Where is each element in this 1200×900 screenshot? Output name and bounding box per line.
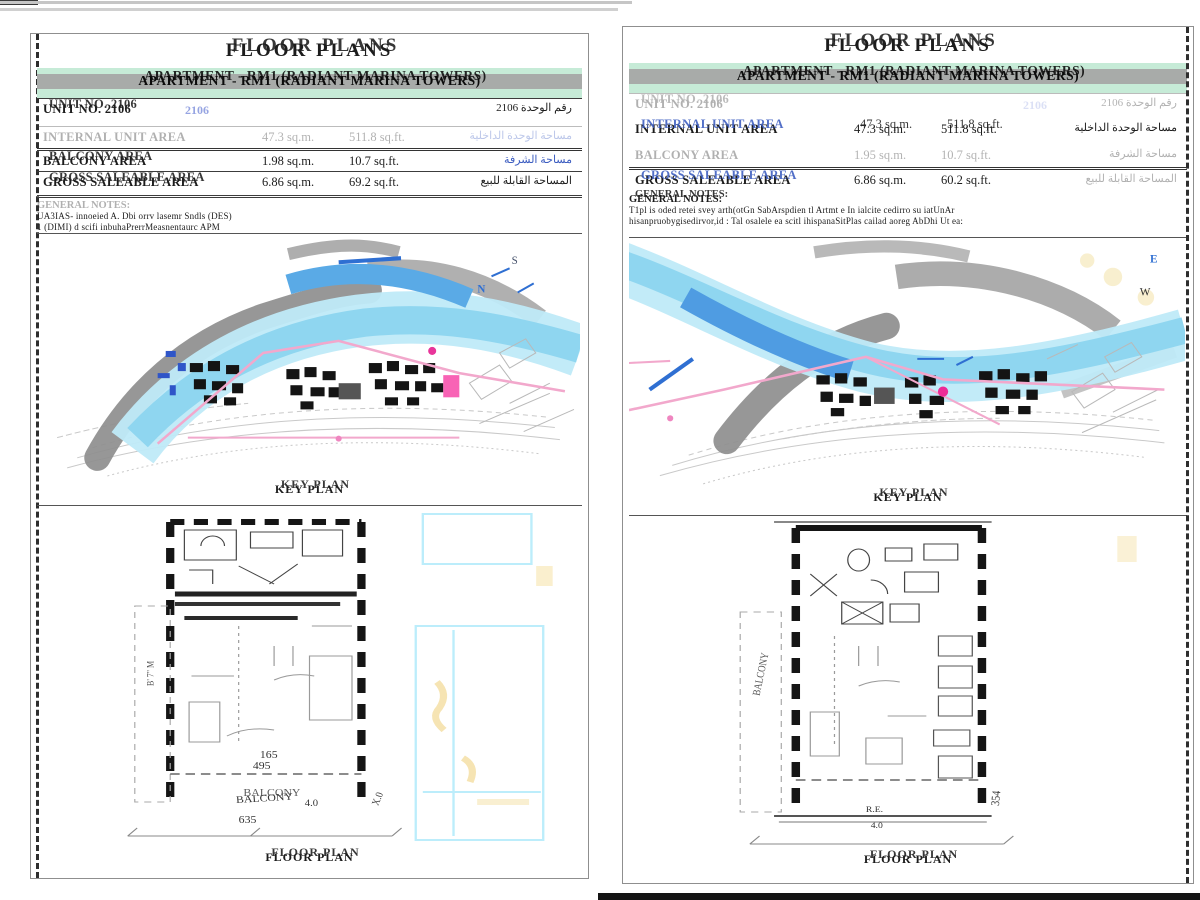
floorplan-page-left: FLOOR PLANSFLOOR PLANS APARTMENT - RM1 (… [30, 33, 589, 879]
key-plan-section: E W KEY PLANKEY PLAN [629, 237, 1187, 516]
balcony-area-row: BALCONY AREA 1.95 sq.m. 10.7 sq.ft. مساح… [629, 145, 1187, 167]
scan-artifact-line1 [0, 1, 632, 4]
unit-number-arabic: رقم الوحدة 2106 [496, 101, 572, 114]
notes-title: GENERAL NOTES:GENERAL NOTES: [629, 194, 1187, 205]
compass-e-label: E [1150, 254, 1158, 266]
scan-artifact-line2 [0, 8, 618, 11]
dimension-x0: X.0 [370, 791, 387, 807]
floor-plan-drawing: BALCONY R.E. 4.0 354 [629, 516, 1185, 852]
dimension-495: 495 [253, 761, 271, 772]
gross-area-row: GROSS SALEABLE AREAGROSS SALEABLE AREA 6… [37, 171, 582, 196]
page-title: FLOOR PLANSFLOOR PLANS [623, 35, 1193, 57]
compass-s-label: S [512, 255, 518, 267]
key-plan-section: S N KEY PLANKEY PLAN [37, 233, 582, 506]
balcony-label-ghost: BALCONY [243, 788, 300, 799]
dimension-40: 4.0 [871, 821, 884, 830]
key-plan-caption: KEY PLANKEY PLAN [37, 482, 582, 497]
floor-plan-caption: FLOOR PLANFLOOR PLAN [629, 852, 1187, 867]
scanned-document-canvas: FLOOR PLANSFLOOR PLANS APARTMENT - RM1 (… [0, 0, 1200, 900]
floorplan-page-right: FLOOR PLANSFLOOR PLANS APARTMENT - RM1 (… [622, 26, 1194, 884]
plan-side-dimension: B' 7" M [145, 661, 156, 686]
unit-number-row: UNIT NO. 2106UNIT NO. 2106 2106 رقم الوح… [629, 93, 1187, 120]
re-label: R.E. [866, 805, 883, 814]
apartment-banner: APARTMENT - RM1 (RADIANT MARINA TOWERS)A… [629, 63, 1187, 93]
unit-number-arabic: رقم الوحدة 2106 [1101, 96, 1177, 109]
floor-plan-drawing: B' 7" M 165 495 BALCONY BALCONY 4.0 635 … [38, 506, 581, 846]
note-line: T1pl is oded retei svey arth(otGn SabArs… [629, 205, 1187, 216]
general-notes: GENERAL NOTES:GENERAL NOTES: T1pl is ode… [629, 193, 1187, 236]
dimension-165: 165 [260, 750, 278, 761]
notes-title: GENERAL NOTES: [37, 200, 582, 211]
floor-plan-caption: FLOOR PLANFLOOR PLAN [37, 850, 582, 865]
unit-number-ghost: 2106 [1023, 98, 1047, 113]
scan-artifact-bottombar [598, 893, 1200, 900]
dimension-40: 4.0 [305, 799, 318, 809]
balcony-side-label: BALCONY [751, 652, 772, 697]
floor-plan-section: B' 7" M 165 495 BALCONY BALCONY 4.0 635 … [37, 505, 582, 877]
apartment-banner: APARTMENT - RM1 (RADIANT MARINA TOWERS)A… [37, 68, 582, 98]
compass-n-label: N [477, 283, 485, 295]
note-line: 1 (DIMI) d scifi inbuhaPrerrMeasnentaurc… [37, 222, 582, 233]
floor-plan-section: BALCONY R.E. 4.0 354 FLOOR PLANFLOOR PLA… [629, 515, 1187, 882]
key-plan-map: S N [37, 234, 580, 482]
unit-number-row: UNIT NO. 2106UNIT NO. 2106 2106 رقم الوح… [37, 98, 582, 127]
page-title: FLOOR PLANSFLOOR PLANS [31, 40, 588, 62]
note-line: UA3IAS- innoeied A. Dbi orrv lasemr Sndl… [37, 211, 582, 222]
key-plan-map: E W [629, 238, 1185, 490]
dimension-354: 354 [989, 790, 1004, 806]
unit-number-label: UNIT NO. 2106UNIT NO. 2106 [43, 102, 131, 117]
internal-area-row: INTERNAL UNIT AREAINTERNAL UNIT AREA 47.… [629, 119, 1187, 145]
dimension-635: 635 [239, 815, 257, 826]
internal-area-row: INTERNAL UNIT AREA 47.3 sq.m. 511.8 sq.f… [37, 126, 582, 149]
key-plan-caption: KEY PLANKEY PLAN [629, 490, 1187, 505]
note-line: hisanpruobygisedirvor,id : Tal osalele e… [629, 216, 1187, 227]
general-notes: GENERAL NOTES: UA3IAS- innoeied A. Dbi o… [37, 195, 582, 236]
unit-number-ghost: 2106 [185, 103, 209, 118]
compass-w-label: W [1140, 286, 1151, 298]
